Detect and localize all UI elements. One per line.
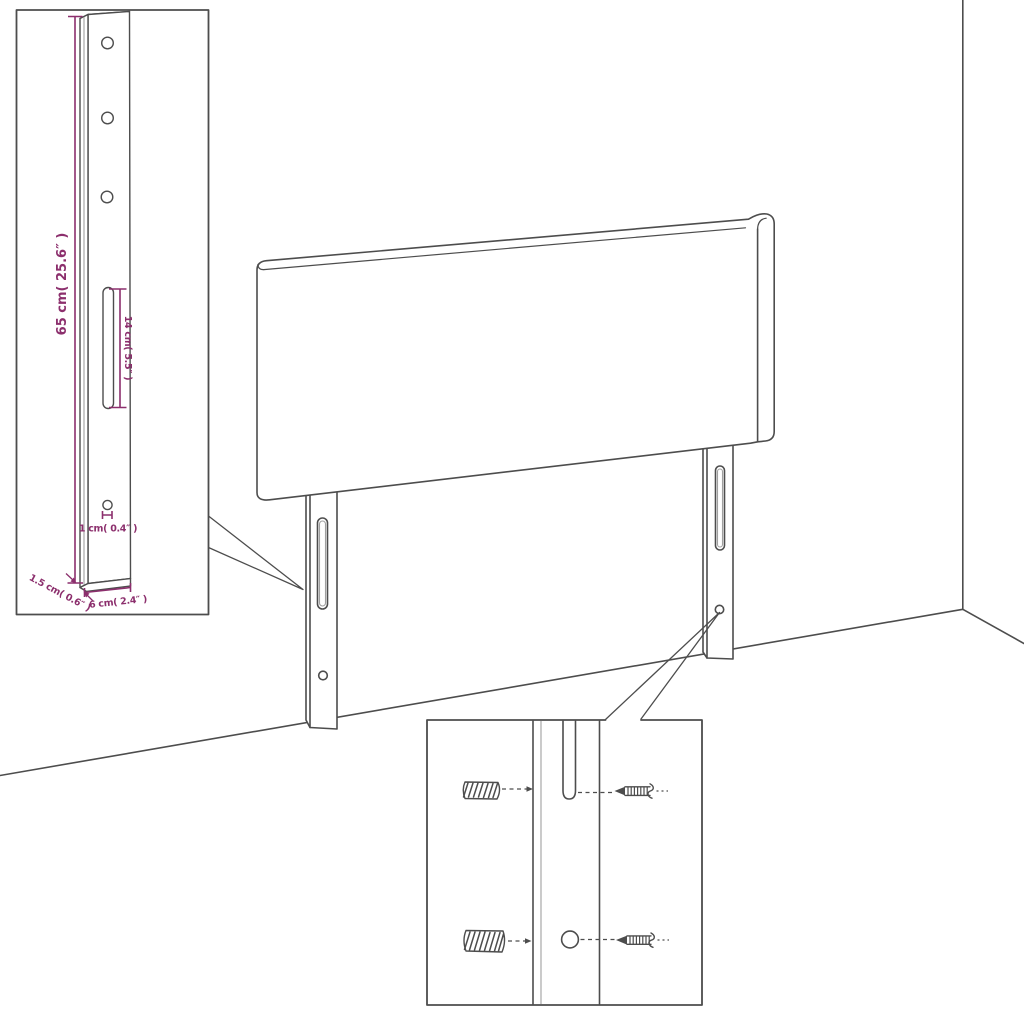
leg-detail-inset: 65 cm( 25.6″ ) 14 cm( 5.5″ ) 1 cm( 0.4″ …	[17, 10, 209, 615]
screw-threads-2	[630, 936, 649, 944]
right-leg	[703, 435, 733, 659]
screw-icon-2	[616, 933, 669, 947]
assembly-diagram: 65 cm( 25.6″ ) 14 cm( 5.5″ ) 1 cm( 0.4″ …	[0, 0, 1024, 1024]
wall-plug-threads	[464, 783, 498, 798]
headboard-outline	[257, 214, 774, 500]
dim-leg-height-label: 65 cm( 25.6″ )	[55, 233, 70, 336]
screw-head-break-2	[649, 933, 654, 947]
screw-tip	[615, 787, 626, 796]
hardware-hole	[562, 931, 579, 948]
hardware-slot	[563, 721, 576, 799]
leader-arrow-top	[527, 786, 534, 791]
screw-tip-2	[616, 936, 627, 945]
headboard-panel	[257, 214, 774, 500]
hardware-detail-inset	[427, 720, 702, 1005]
dim-hole-diameter-label: 1 cm( 0.4″ )	[79, 523, 137, 534]
wall-plug-icon-2	[464, 931, 505, 953]
dim-slot-length-label: 14 cm( 5.5″ )	[122, 316, 133, 381]
callout-lines-leg-detail	[209, 516, 304, 590]
floor-line-left	[0, 609, 963, 775]
left-leg	[306, 455, 337, 729]
wall-plug-icon	[463, 782, 499, 799]
wall-plug-threads-2	[465, 932, 504, 951]
screw-icon	[615, 784, 669, 798]
screw-threads	[628, 787, 647, 795]
callout-lines-hardware-detail	[606, 613, 720, 720]
floor-line-right	[963, 609, 1024, 643]
screw-head-break	[648, 784, 653, 798]
leader-arrow-bottom	[525, 938, 532, 943]
inset-leg-front-face	[88, 12, 131, 584]
hardware-inset-box	[427, 720, 702, 1005]
diagram-canvas: 65 cm( 25.6″ ) 14 cm( 5.5″ ) 1 cm( 0.4″ …	[0, 0, 1024, 1024]
